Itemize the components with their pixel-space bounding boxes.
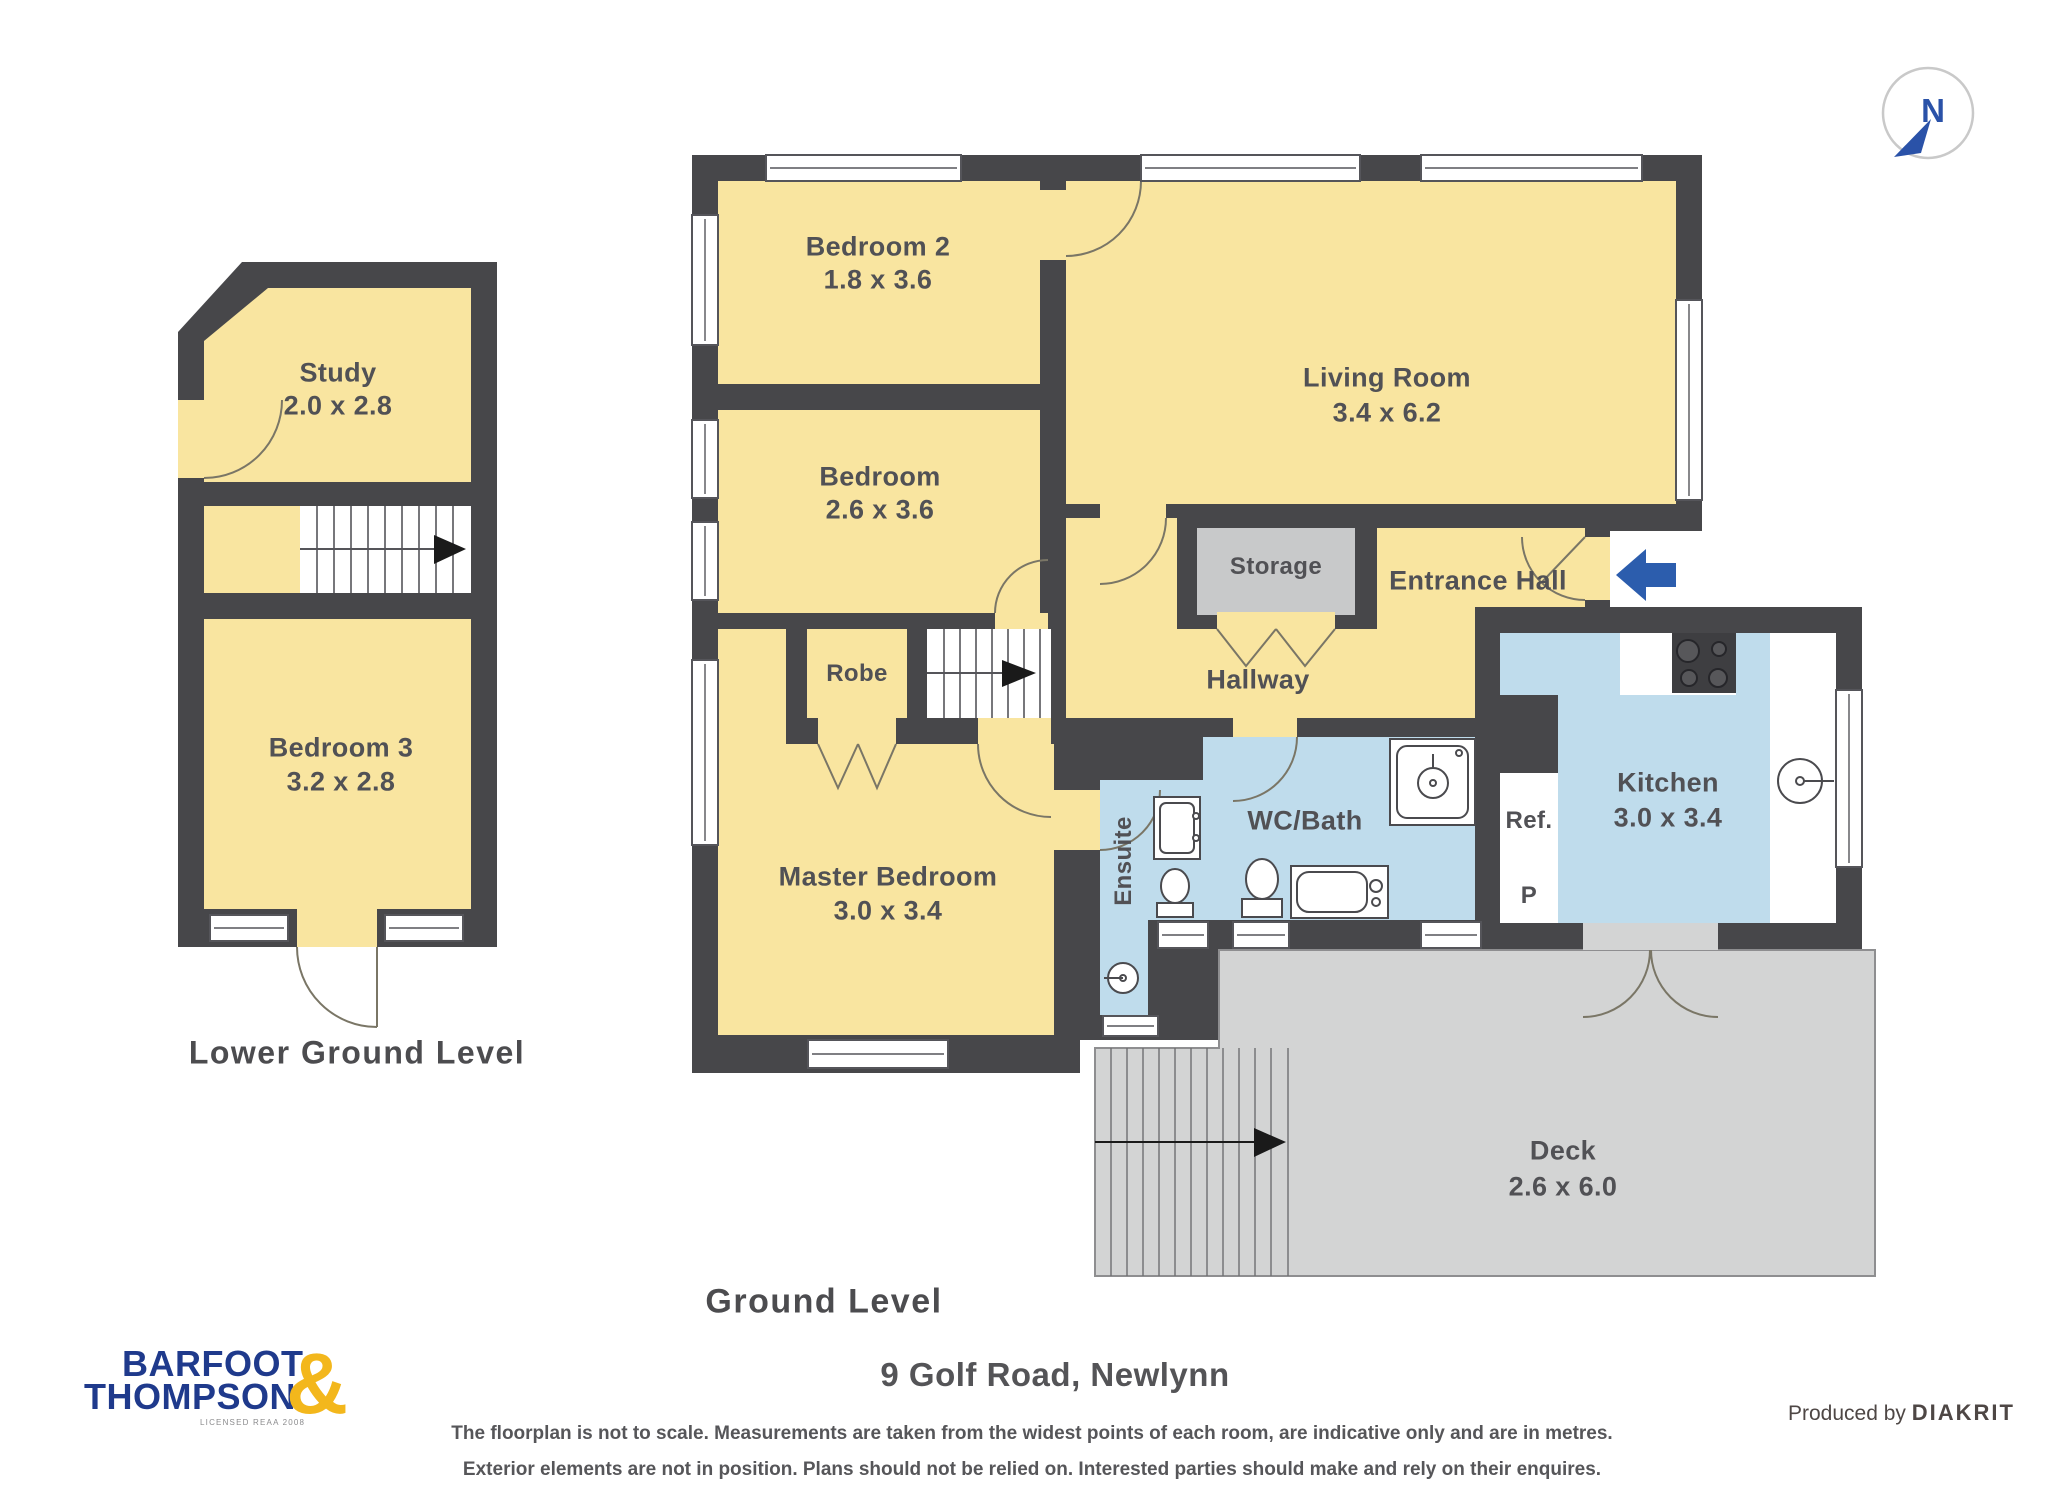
living-label: Living Room <box>1303 363 1471 394</box>
deck-dims: 2.6 x 6.0 <box>1509 1172 1618 1203</box>
produced-by: Produced by DIAKRIT <box>1788 1400 2015 1426</box>
logo-license: LICENSED REAA 2008 <box>200 1418 305 1427</box>
pantry-label: P <box>1521 882 1537 910</box>
robe-label: Robe <box>826 660 888 688</box>
bedroom3-exterior-door-arc <box>297 947 377 1027</box>
bedroom2-label: Bedroom 2 <box>806 232 951 263</box>
hallway-label: Hallway <box>1206 665 1309 696</box>
floorplan-page: Study 2.0 x 2.8 Bedroom 3 3.2 x 2.8 Bedr… <box>0 0 2048 1494</box>
shower-icon <box>1390 739 1475 825</box>
entrance-label: Entrance Hall <box>1389 566 1567 597</box>
master-dims: 3.0 x 3.4 <box>834 896 943 927</box>
producer-brand: DIAKRIT <box>1912 1400 2015 1425</box>
ensuite-label: Ensuite <box>1110 816 1138 905</box>
ensuite-sink-icon <box>1154 797 1200 859</box>
wc-bath-label: WC/Bath <box>1247 806 1362 837</box>
toilet-icon <box>1242 859 1282 917</box>
study-label: Study <box>299 358 376 389</box>
ground-plan-title: Ground Level <box>705 1283 942 1322</box>
produced-by-text: Produced by <box>1788 1402 1906 1425</box>
disclaimer-line1: The floorplan is not to scale. Measureme… <box>451 1423 1612 1445</box>
compass-north-label: N <box>1921 92 1945 130</box>
disclaimer-line2: Exterior elements are not in position. P… <box>463 1459 1601 1481</box>
master-nook-floor <box>718 629 786 744</box>
bedroom2-dims: 1.8 x 3.6 <box>824 265 933 296</box>
bedroom3-label: Bedroom 3 <box>269 733 414 764</box>
bathtub-icon <box>1291 866 1388 918</box>
living-dims: 3.4 x 6.2 <box>1333 398 1442 429</box>
ensuite-toilet-icon <box>1157 869 1193 917</box>
study-dims: 2.0 x 2.8 <box>284 391 393 422</box>
bedroom3-dims: 3.2 x 2.8 <box>287 767 396 798</box>
fridge-label: Ref. <box>1506 807 1553 835</box>
master-label: Master Bedroom <box>779 862 998 893</box>
bedroom3-exterior-door-opening <box>297 909 377 947</box>
living-room-floor <box>1066 181 1676 504</box>
bedroom-dims: 2.6 x 3.6 <box>826 495 935 526</box>
address-title: 9 Golf Road, Newlynn <box>880 1356 1229 1394</box>
logo-line2: THOMPSON <box>84 1381 296 1413</box>
logo-ampersand-icon: & <box>286 1352 348 1416</box>
study-door-opening <box>178 400 204 478</box>
kitchen-label: Kitchen <box>1617 768 1719 799</box>
bedroom3-floor <box>204 619 471 909</box>
deck-label: Deck <box>1530 1136 1596 1167</box>
storage-label: Storage <box>1230 553 1322 581</box>
lower-plan-title: Lower Ground Level <box>189 1035 525 1072</box>
entrance-hall-connector-floor <box>1377 528 1475 718</box>
bedroom-label: Bedroom <box>819 462 940 493</box>
stair-landing-floor <box>204 506 300 593</box>
kitchen-dims: 3.0 x 3.4 <box>1614 803 1723 834</box>
